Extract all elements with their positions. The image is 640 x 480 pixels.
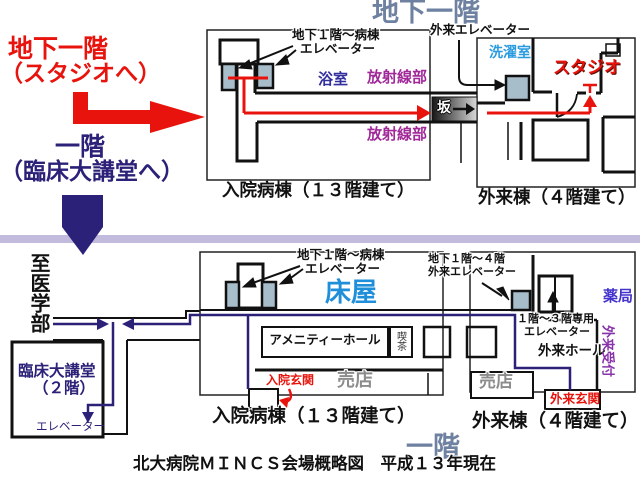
b1-ward-elevator-right [257,64,273,88]
f1-ward-elevator-label-line1: 地下１階～病棟 [297,249,385,262]
slope-label: 坂 [437,100,451,115]
b1-outpatient-elevator [506,76,529,100]
navy-arrowhead-right [97,318,109,330]
b1-studio-label: スタジオ [553,59,621,77]
f1-ward-elevator-label-line2: エレベーター [305,263,380,276]
legend-b1-line2: （スタジオへ） [0,61,161,85]
f1-elevator2-label-line2: エレベーター [524,327,590,339]
legend-f1-line1: 一階 [55,134,105,160]
lecture-hall-elevator-label: エレベーター [36,421,105,433]
b1-inpatient-building-name: 入院病棟（１３階建て） [222,181,415,199]
b1-ward-elevator-label-line2: エレベーター [300,43,375,56]
f1-outpatient-shop-label: 売店 [479,373,513,391]
lecture-hall-name-line1: 臨床大講堂 [18,364,96,380]
f1-outpatient-elevator-label-line1: 地下１階～４階 [428,254,505,266]
navy-arrowhead-left [122,318,134,330]
map-caption: 北大病院ＭＩＮＣＳ会場概略図 平成１３年現在 [133,456,496,473]
lecture-hall-name-line2: （２階） [33,381,95,397]
f1-ward-elevator-right [262,282,276,308]
f1-outpatient-elevator [512,291,530,310]
legend-f1-line2: （臨床大講堂へ） [0,159,184,183]
legend-red-arrow-icon [73,92,205,133]
barber-label: 床屋 [325,279,377,306]
f1-ward-elevator-left [226,282,239,308]
legend-b1-line1: 地下一階 [8,36,108,62]
f1-inpatient-building-name: 入院病棟（１３階建て） [212,406,416,425]
inpatient-entrance-label: 入院玄関 [266,374,314,387]
to-medical-school-label: 至医学部 [27,253,48,343]
b1-bath-label: 浴室 [318,72,348,88]
b1-outpatient-building-name: 外来棟（４階建て） [478,188,636,206]
b1-outpatient-elevator-label: 外来エレベーター [430,24,530,37]
b1-ward-elevator-label-line1: 地下１階～病棟 [292,29,380,42]
b1-radiology-lower-label: 放射線部 [367,127,427,143]
hospital-map: 地下一階 一階 北大病院ＭＩＮＣＳ会場概略図 平成１３年現在 地下一階 （スタジ… [0,0,640,480]
amenity-hall-label: アメニティーホール [262,334,388,347]
b1-laundry-label: 洗濯室 [489,45,531,60]
f1-inpatient-shop-label: 売店 [337,371,373,390]
f1-elevator2-label-line1: １階～３階専用 [517,314,594,326]
pharmacy-label: 薬局 [603,289,633,305]
outpatient-hall-label: 外来ホール [538,344,606,358]
f1-outpatient-elevator-label-line2: 外来エレベーター [428,267,516,279]
cafe-label: 喫茶 [394,331,405,351]
outpatient-reception-label: 外来受付 [601,325,615,393]
outpatient-entrance-label: 外来玄関 [550,393,600,406]
legend-navy-arrow-icon [62,195,103,255]
b1-radiology-upper-label: 放射線部 [367,70,427,86]
f1-outpatient-building-name: 外来棟（４階建て） [472,411,639,430]
